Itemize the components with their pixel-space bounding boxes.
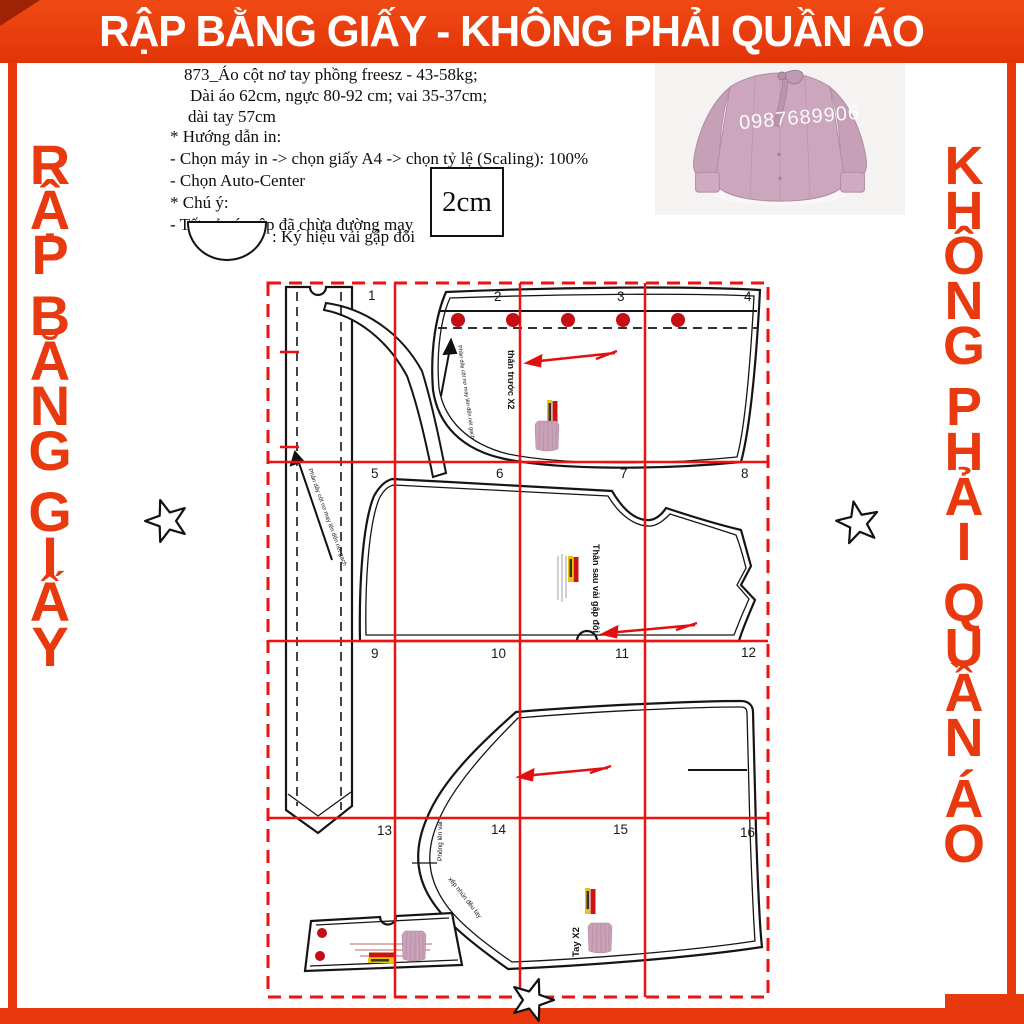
right-border-bar [1007, 62, 1016, 1024]
product-info: 873_Áo cột nơ tay phồng freesz - 43-58kg… [184, 64, 487, 127]
instruction-line: * Chú ý: [170, 192, 588, 214]
fold-symbol-icon [187, 221, 267, 261]
page-number: 3 [617, 289, 625, 304]
product-info-line: Dài áo 62cm, ngực 80-92 cm; vai 35-37cm; [184, 85, 487, 106]
seam-lines [288, 292, 757, 966]
product-info-line: 873_Áo cột nơ tay phồng freesz - 43-58kg… [184, 64, 487, 85]
page-number: 6 [496, 466, 504, 481]
sleeve-shoulder-note: Phồng lên vai [437, 822, 444, 861]
page-number: 14 [491, 822, 506, 837]
banner-corner-decoration [0, 0, 40, 26]
blouse-illustration [655, 63, 905, 215]
left-vertical-text: RẬPBẰNGGIẤY [22, 142, 78, 669]
page-number: 1 [368, 288, 376, 303]
sleeve-gather-note: xếp nhún đều tay [446, 876, 482, 920]
strap-note-2: Phần dây cột nơ may lên đến nét gạch [456, 345, 475, 439]
right-vertical-text: KHÔNGPHẢIQUẦNÁO [936, 144, 992, 867]
page-number: 5 [371, 466, 379, 481]
page-number: 15 [613, 822, 628, 837]
print-grid [268, 283, 768, 997]
product-photo: 0987689906 [655, 63, 905, 215]
button-marks [315, 313, 685, 961]
instruction-line: - Chọn máy in -> chọn giấy A4 -> chọn tỷ… [170, 148, 588, 170]
guide-arrows [291, 340, 456, 560]
page-number: 10 [491, 646, 506, 661]
grain-arrows [519, 351, 697, 780]
print-instructions: * Hướng dẫn in: - Chọn máy in -> chọn gi… [170, 126, 588, 236]
instruction-line: - Chọn Auto-Center [170, 170, 588, 192]
front-piece-label: thân trước X2 [506, 350, 516, 409]
scale-test-label: 2cm [442, 186, 492, 219]
page-number: 4 [744, 289, 752, 304]
sleeve-piece-label: Tay X2 [571, 927, 582, 957]
banner-title: RẬP BẰNG GIẤY - KHÔNG PHẢI QUẦN ÁO [100, 7, 925, 57]
page-number: 9 [371, 646, 379, 661]
bottom-right-corner-bar [945, 994, 1024, 1010]
star-icon [833, 497, 882, 545]
page-number: 2 [494, 289, 502, 304]
page-number: 7 [620, 466, 628, 481]
page-number: 11 [615, 646, 629, 661]
page-number: 12 [741, 645, 756, 660]
top-banner: RẬP BẰNG GIẤY - KHÔNG PHẢI QUẦN ÁO [0, 0, 1024, 63]
scale-test-box: 2cm [430, 167, 504, 237]
product-info-line: dài tay 57cm [184, 106, 487, 127]
back-piece-label: Thân sau vải gập đôi [591, 544, 601, 633]
strap-note: Phần dây cột nơ may lên đến nét gạch [306, 468, 347, 567]
left-border-bar [8, 62, 17, 1024]
instruction-line: * Hướng dẫn in: [170, 126, 588, 148]
page-number: 16 [740, 825, 755, 840]
pattern-poster: { "banner": { "title": "RẬP BẰNG GIẤY - … [0, 0, 1024, 1024]
pattern-pieces [286, 287, 762, 971]
page-number: 8 [741, 466, 749, 481]
page-number: 13 [377, 823, 392, 838]
fold-symbol-label: : Ký hiệu vải gập đôi [272, 227, 415, 247]
star-icon [140, 494, 192, 545]
bottom-border-bar [0, 1008, 1024, 1024]
